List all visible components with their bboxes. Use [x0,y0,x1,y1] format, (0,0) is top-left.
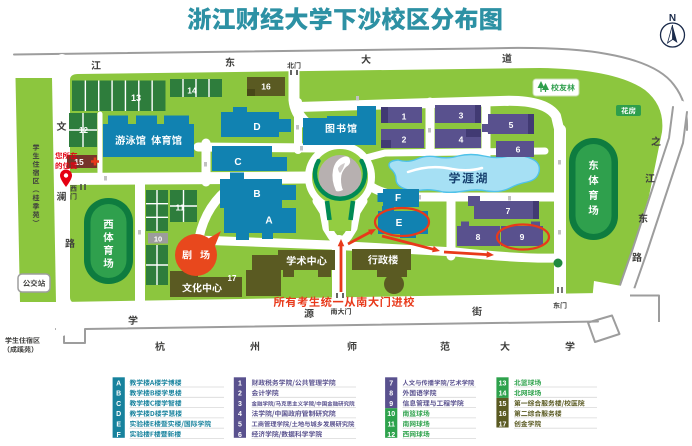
svg-text:15: 15 [499,401,507,408]
svg-text:3: 3 [238,401,242,408]
svg-text:13: 13 [499,380,507,387]
svg-text:5: 5 [238,422,242,429]
svg-text:C: C [234,157,241,168]
svg-text:D: D [116,411,121,418]
svg-text:10: 10 [387,411,395,418]
svg-text:F: F [395,193,401,204]
svg-text:4: 4 [238,411,242,418]
svg-text:1: 1 [402,112,407,122]
svg-text:C: C [116,401,121,408]
svg-text:6: 6 [238,432,242,439]
svg-text:E: E [396,218,403,229]
svg-text:A: A [265,216,272,227]
svg-text:13: 13 [131,93,141,103]
svg-text:1: 1 [238,380,242,387]
svg-text:F: F [117,432,122,439]
svg-text:12: 12 [79,126,88,135]
svg-text:7: 7 [389,380,393,387]
svg-text:17: 17 [499,422,507,429]
svg-text:11: 11 [176,203,185,213]
svg-text:14: 14 [187,86,197,96]
svg-text:16: 16 [261,82,271,92]
svg-text:B: B [116,391,121,398]
svg-text:8: 8 [476,232,481,242]
svg-text:16: 16 [499,411,507,418]
svg-text:10: 10 [154,235,162,244]
svg-text:2: 2 [402,135,407,145]
svg-text:3: 3 [459,111,464,121]
svg-text:14: 14 [499,391,507,398]
svg-text:7: 7 [506,206,511,216]
svg-text:5: 5 [509,120,514,130]
svg-text:6: 6 [516,145,521,155]
svg-text:D: D [253,122,260,133]
svg-text:8: 8 [389,391,393,398]
svg-text:9: 9 [389,401,393,408]
svg-text:E: E [116,422,121,429]
svg-text:11: 11 [387,422,395,429]
svg-text:17: 17 [228,274,237,283]
svg-text:9: 9 [520,232,525,242]
svg-text:A: A [116,380,121,387]
svg-text:B: B [253,189,260,200]
svg-text:4: 4 [459,135,464,145]
svg-text:2: 2 [238,391,242,398]
svg-text:12: 12 [387,432,395,439]
